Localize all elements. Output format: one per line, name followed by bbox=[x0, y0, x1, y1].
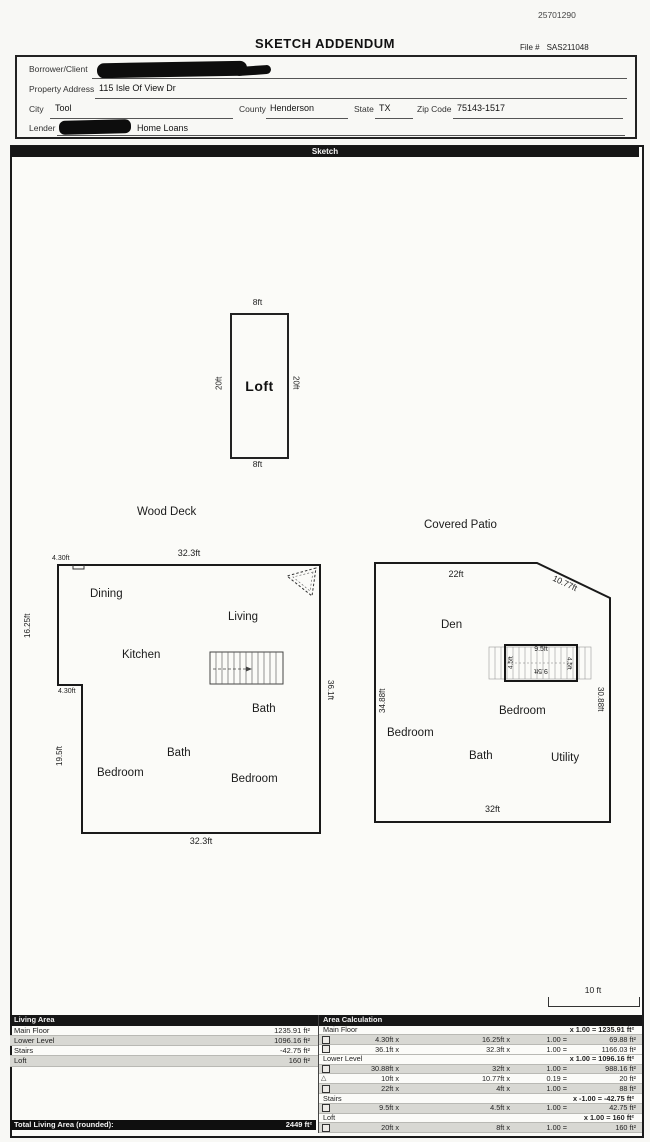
lower-dim-bottom: 32ft bbox=[375, 804, 610, 814]
zip-label: Zip Code bbox=[417, 104, 452, 114]
loft-room-label: Loft bbox=[245, 378, 273, 394]
loft-dim-top: 8ft bbox=[230, 297, 285, 307]
main-dim-bottom: 32.3ft bbox=[82, 836, 320, 846]
calc-result: 69.88 ft² bbox=[567, 1035, 642, 1045]
main-dim-left-upper: 16.25ft bbox=[21, 597, 34, 655]
living-area-row-label: Loft bbox=[10, 1056, 220, 1065]
sketch-section-header: Sketch bbox=[11, 146, 639, 157]
rect-icon bbox=[319, 1124, 333, 1132]
rect-icon bbox=[319, 1104, 333, 1112]
living-area-row-label: Stairs bbox=[10, 1046, 220, 1055]
area-calc-header: Area Calculation bbox=[319, 1015, 642, 1026]
calc-dim-b: 4.5ft x bbox=[399, 1103, 510, 1113]
rect-icon bbox=[319, 1065, 333, 1073]
main-dim-top-notch: 4.30ft bbox=[52, 555, 70, 562]
living-area-row-value: 1235.91 ft² bbox=[220, 1026, 318, 1035]
room-living: Living bbox=[228, 611, 258, 623]
calc-result: 20 ft² bbox=[567, 1074, 642, 1084]
lender-underline bbox=[57, 135, 625, 136]
city-label: City bbox=[29, 104, 44, 114]
calc-dim-a: 22ft x bbox=[333, 1084, 399, 1094]
state-value: TX bbox=[379, 103, 391, 113]
room-kitchen: Kitchen bbox=[122, 649, 160, 661]
rect-icon bbox=[319, 1085, 333, 1093]
file-number-label: File # bbox=[520, 43, 540, 52]
calc-group-label: Stairs bbox=[319, 1094, 573, 1104]
living-area-table: Living Area Main Floor 1235.91 ft² Lower… bbox=[10, 1015, 318, 1067]
calc-dim-a: 4.30ft x bbox=[333, 1035, 399, 1045]
room-utility: Utility bbox=[551, 752, 579, 764]
calc-group-label: Main Floor bbox=[319, 1025, 570, 1035]
zip-value: 75143-1517 bbox=[457, 103, 505, 113]
area-calc-row: 20ft x 8ft x 1.00 = 160 ft² bbox=[319, 1123, 642, 1133]
calc-result: 88 ft² bbox=[567, 1084, 642, 1094]
room-bedroom-left: Bedroom bbox=[97, 767, 144, 779]
state-underline bbox=[375, 118, 413, 119]
county-underline bbox=[266, 118, 348, 119]
borrower-redaction-tail bbox=[235, 65, 272, 76]
state-label: State bbox=[354, 104, 374, 114]
calc-dim-a: 30.88ft x bbox=[333, 1064, 399, 1074]
living-area-header: Living Area bbox=[10, 1015, 318, 1026]
calc-factor: 1.00 = bbox=[510, 1123, 567, 1133]
loft-dim-right: 20ft bbox=[289, 352, 303, 414]
total-living-area-value: 2449 ft² bbox=[286, 1120, 316, 1131]
room-bedroom-right: Bedroom bbox=[231, 773, 278, 785]
calc-group-formula: x 1.00 = 160 ft² bbox=[584, 1113, 642, 1123]
city-value: Tool bbox=[55, 103, 72, 113]
lower-dim-right: 30.88ft bbox=[594, 668, 607, 730]
county-label: County bbox=[239, 104, 266, 114]
calc-dim-a: 9.5ft x bbox=[333, 1103, 399, 1113]
living-area-row: Loft 160 ft² bbox=[10, 1056, 318, 1066]
calc-factor: 1.00 = bbox=[510, 1035, 567, 1045]
calc-factor: 1.00 = bbox=[510, 1045, 567, 1055]
calc-result: 160 ft² bbox=[567, 1123, 642, 1133]
property-address-label: Property Address bbox=[29, 84, 94, 94]
calc-group-formula: x 1.00 = 1235.91 ft² bbox=[570, 1025, 642, 1035]
property-address-value: 115 Isle Of View Dr bbox=[99, 83, 176, 93]
calc-result: 1166.03 ft² bbox=[567, 1045, 642, 1055]
borrower-underline bbox=[92, 78, 627, 79]
main-dim-right: 36.1ft bbox=[324, 663, 337, 718]
main-dim-top: 32.3ft bbox=[58, 548, 320, 558]
living-area-row: Lower Level 1096.16 ft² bbox=[10, 1036, 318, 1046]
total-living-area-bar: Total Living Area (rounded): 2449 ft² bbox=[10, 1120, 316, 1131]
lender-redaction bbox=[59, 119, 131, 135]
triangle-icon: △ bbox=[319, 1074, 333, 1084]
living-area-row-value: 160 ft² bbox=[220, 1056, 318, 1065]
calc-factor: 1.00 = bbox=[510, 1103, 567, 1113]
lower-dim-top: 22ft bbox=[375, 569, 537, 579]
rect-icon bbox=[319, 1036, 333, 1044]
loft-outline: Loft bbox=[230, 313, 289, 459]
main-dim-step: 4.30ft bbox=[58, 688, 76, 695]
file-number-value: SAS211048 bbox=[547, 43, 589, 52]
living-area-row-label: Lower Level bbox=[10, 1036, 220, 1045]
covered-patio-label: Covered Patio bbox=[424, 519, 497, 531]
room-bath-upper: Bath bbox=[252, 703, 276, 715]
borrower-redaction bbox=[97, 61, 247, 79]
room-dining: Dining bbox=[90, 588, 123, 600]
living-area-row: Main Floor 1235.91 ft² bbox=[10, 1026, 318, 1036]
calc-dim-b: 10.77ft x bbox=[399, 1074, 510, 1084]
scale-label: 10 ft bbox=[548, 985, 638, 995]
living-area-row-value: 1096.16 ft² bbox=[220, 1036, 318, 1045]
wood-deck-label: Wood Deck bbox=[137, 506, 196, 518]
file-number-block: File #SAS211048 bbox=[520, 43, 596, 52]
stairs-dim-right: 4.5ft bbox=[564, 650, 574, 676]
borrower-label: Borrower/Client bbox=[29, 64, 88, 74]
calc-group-formula: x 1.00 = 1096.16 ft² bbox=[570, 1054, 642, 1064]
calc-dim-a: 20ft x bbox=[333, 1123, 399, 1133]
room-bath-lower: Bath bbox=[167, 747, 191, 759]
total-living-area-label: Total Living Area (rounded): bbox=[10, 1120, 286, 1131]
room-den: Den bbox=[441, 619, 462, 631]
room-bath-lower-level: Bath bbox=[469, 750, 493, 762]
scale-bar bbox=[548, 997, 640, 1007]
room-bedroom-center: Bedroom bbox=[499, 705, 546, 717]
living-area-row: Stairs -42.75 ft² bbox=[10, 1046, 318, 1056]
living-area-row-value: -42.75 ft² bbox=[220, 1046, 318, 1055]
calc-dim-b: 32ft x bbox=[399, 1064, 510, 1074]
document-number: 25701290 bbox=[538, 10, 576, 20]
city-underline bbox=[50, 118, 233, 119]
calc-group-label: Loft bbox=[319, 1113, 584, 1123]
stairs-dim-left: 4.5ft bbox=[506, 650, 516, 676]
calc-result: 988.16 ft² bbox=[567, 1064, 642, 1074]
calc-group-label: Lower Level bbox=[319, 1054, 570, 1064]
loft-dim-left: 20ft bbox=[212, 352, 226, 414]
lender-label: Lender bbox=[29, 123, 55, 133]
county-value: Henderson bbox=[270, 103, 314, 113]
living-area-row-label: Main Floor bbox=[10, 1026, 220, 1035]
calc-dim-b: 4ft x bbox=[399, 1084, 510, 1094]
lender-value: Home Loans bbox=[137, 123, 188, 133]
property-underline bbox=[95, 98, 627, 99]
sketch-addendum-page: 25701290 SKETCH ADDENDUM File #SAS211048… bbox=[0, 0, 650, 1142]
calc-group-formula: x -1.00 = -42.75 ft² bbox=[573, 1094, 642, 1104]
lower-dim-left: 34.88ft bbox=[376, 670, 389, 732]
calc-factor: 0.19 = bbox=[510, 1074, 567, 1084]
rect-icon bbox=[319, 1045, 333, 1053]
loft-dim-bottom: 8ft bbox=[230, 459, 285, 469]
calc-dim-a: 36.1ft x bbox=[333, 1045, 399, 1055]
area-calculation-table: Area Calculation Main Floor x 1.00 = 123… bbox=[318, 1015, 642, 1133]
calc-dim-b: 16.25ft x bbox=[399, 1035, 510, 1045]
calc-result: 42.75 ft² bbox=[567, 1103, 642, 1113]
calc-dim-b: 8ft x bbox=[399, 1123, 510, 1133]
calc-dim-a: 10ft x bbox=[333, 1074, 399, 1084]
subject-info-form: Borrower/Client Property Address 115 Isl… bbox=[15, 55, 637, 139]
zip-underline bbox=[453, 118, 623, 119]
calc-dim-b: 32.3ft x bbox=[399, 1045, 510, 1055]
main-dim-left-lower: 19.5ft bbox=[53, 728, 66, 783]
room-bedroom-lower-left: Bedroom bbox=[387, 727, 434, 739]
calc-factor: 1.00 = bbox=[510, 1064, 567, 1074]
calc-factor: 1.00 = bbox=[510, 1084, 567, 1094]
